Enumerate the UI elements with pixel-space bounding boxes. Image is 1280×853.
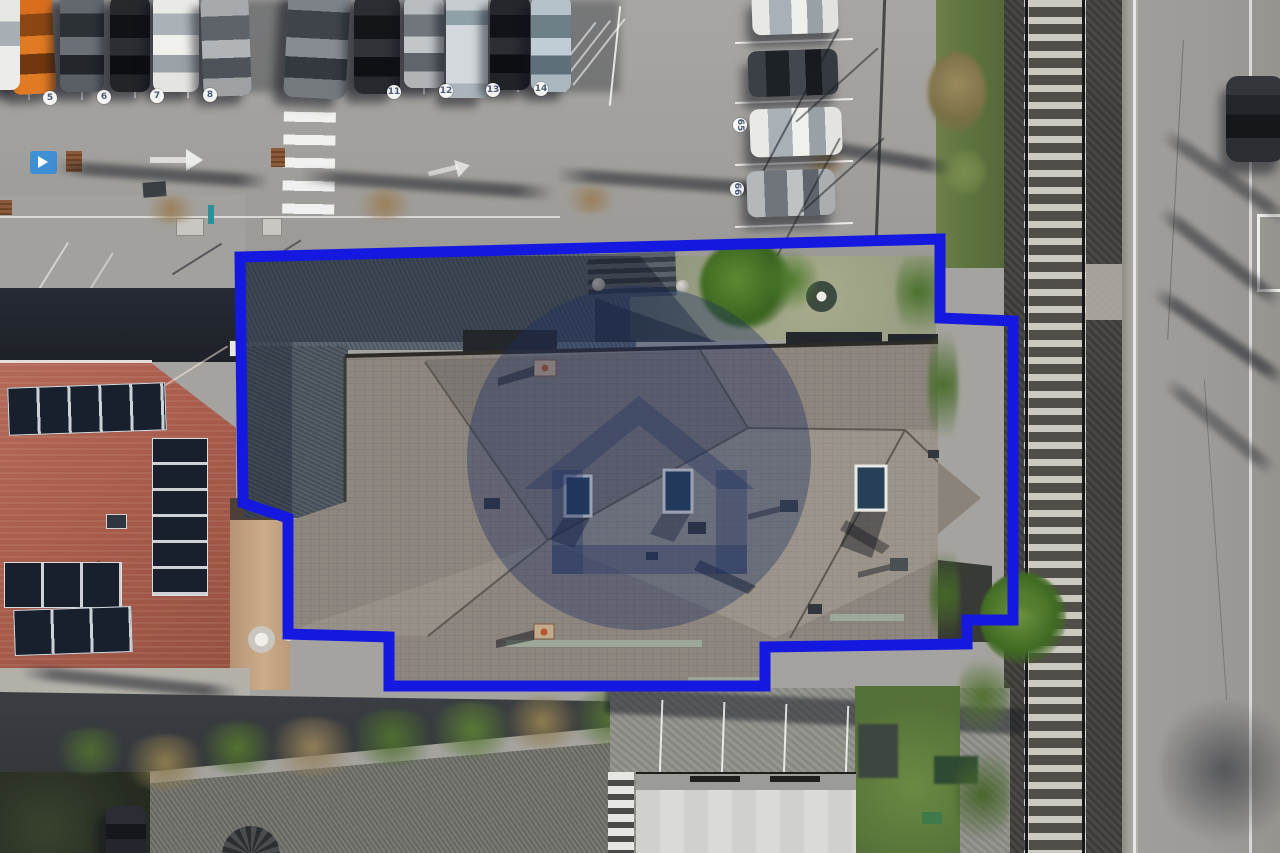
house-logo-watermark [467,286,811,630]
overlay-layer [0,0,1280,853]
aerial-photo: 5 6 7 8 11 12 13 14 65 66 [0,0,1280,853]
